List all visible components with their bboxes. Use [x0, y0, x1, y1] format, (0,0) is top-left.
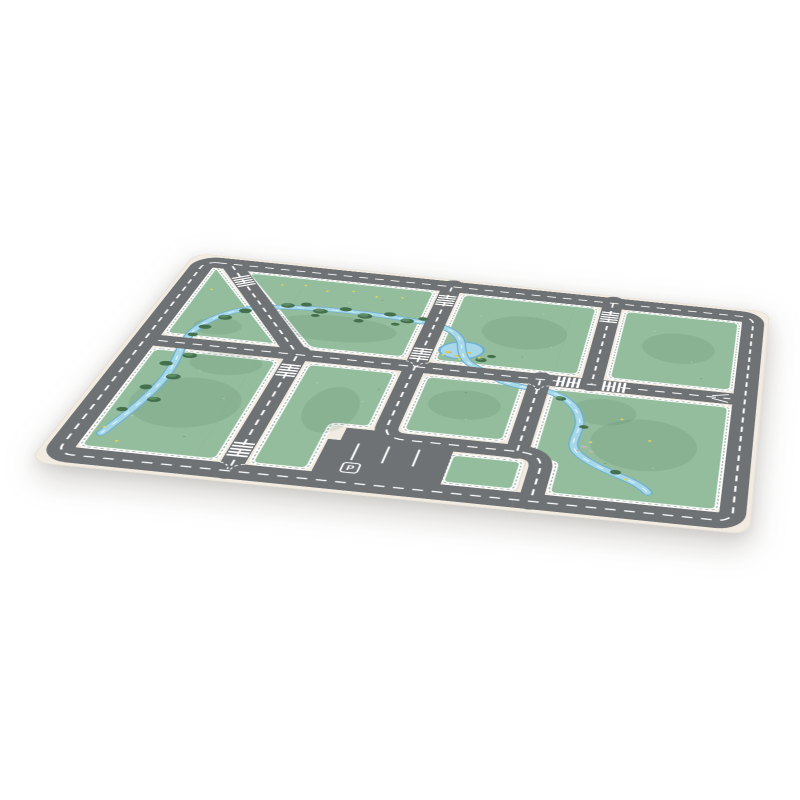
block-small-square [441, 454, 522, 490]
playmat-shadow-wrap: P [0, 0, 800, 800]
playmat: P [28, 253, 770, 535]
product-image: P [0, 0, 800, 800]
